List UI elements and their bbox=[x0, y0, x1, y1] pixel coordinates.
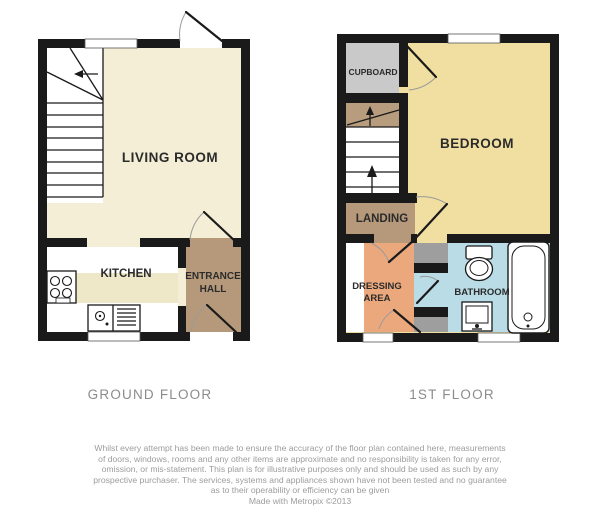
floor-plans-drawing: LIVING ROOM KITCHEN ENTRANCE HALL GROUND… bbox=[0, 0, 600, 430]
ground-floor-caption: GROUND FLOOR bbox=[88, 387, 213, 402]
living-room-label: LIVING ROOM bbox=[122, 150, 218, 165]
storage-block-top bbox=[414, 243, 448, 263]
disclaimer-text: Whilst every attempt has been made to en… bbox=[0, 443, 600, 507]
kitchen-sink bbox=[88, 305, 140, 331]
back-door-opening bbox=[180, 38, 222, 48]
disclaimer-line: omission, or mis-statement. This plan is… bbox=[0, 464, 600, 475]
bedroom-label: BEDROOM bbox=[440, 136, 514, 151]
entrance-hall-label-line2: HALL bbox=[200, 284, 227, 295]
ground-floor-plan: LIVING ROOM KITCHEN ENTRANCE HALL GROUND… bbox=[38, 12, 250, 402]
back-door bbox=[180, 12, 222, 41]
metropix-credit: Made with Metropix ©2013 bbox=[0, 496, 600, 507]
bathroom-label: BATHROOM bbox=[454, 287, 509, 298]
entrance-hall-label-line1: ENTRANCE bbox=[185, 271, 241, 282]
bathroom-sink bbox=[462, 302, 492, 331]
storage-block-bottom bbox=[414, 317, 448, 332]
front-door-opening bbox=[190, 332, 233, 342]
ground-floor-stairs bbox=[47, 48, 103, 203]
dressing-area-window bbox=[363, 333, 393, 342]
kitchen-window bbox=[88, 332, 140, 341]
disclaimer-line: prospective purchaser. The services, sys… bbox=[0, 475, 600, 486]
floor-plan-page: LIVING ROOM KITCHEN ENTRANCE HALL GROUND… bbox=[0, 0, 600, 520]
stove-hob bbox=[47, 271, 76, 303]
disclaimer-line: Whilst every attempt has been made to en… bbox=[0, 443, 600, 454]
dressing-area-label-line1: DRESSING bbox=[352, 281, 402, 292]
disclaimer-line: as to their operability or efficiency ca… bbox=[0, 485, 600, 496]
bedroom-window bbox=[448, 34, 500, 43]
first-floor-caption: 1ST FLOOR bbox=[409, 387, 495, 402]
kitchen-label: KITCHEN bbox=[100, 268, 151, 280]
cupboard-label: CUPBOARD bbox=[348, 67, 397, 77]
landing-label: LANDING bbox=[356, 213, 408, 225]
bathroom-window bbox=[478, 333, 520, 342]
disclaimer-line: of doors, windows, rooms and any other i… bbox=[0, 454, 600, 465]
first-floor-plan: BEDROOM CUPBOARD LANDING DRESSING AREA B… bbox=[337, 34, 559, 402]
bathtub bbox=[508, 242, 549, 333]
living-room-window bbox=[85, 39, 137, 48]
toilet bbox=[466, 246, 493, 281]
dressing-area-label-line2: AREA bbox=[364, 293, 391, 304]
